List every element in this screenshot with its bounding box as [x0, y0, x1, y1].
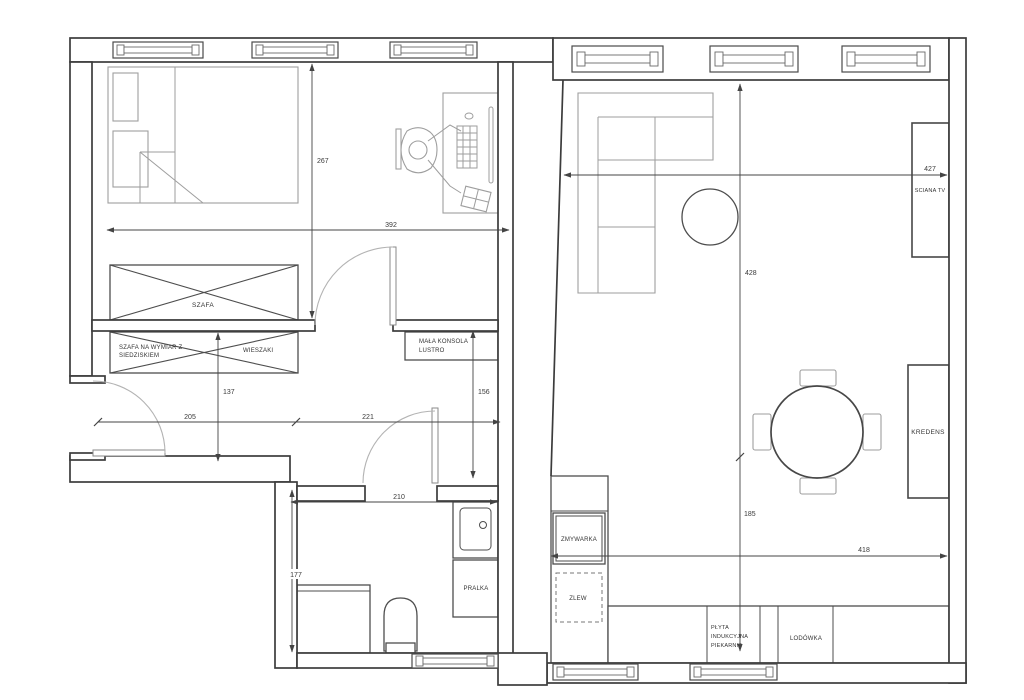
console-label-line1: MAŁA KONSOLA: [419, 339, 468, 345]
entrance-jamb-top: [70, 376, 105, 383]
window: [553, 664, 638, 680]
dim-kitchen-depth: 185: [744, 511, 756, 518]
coffee-table: [682, 189, 738, 245]
dining-set: [753, 370, 881, 494]
floor-plan-page: KREDENS SCIANA TV ZMYWARKA ZLEW PŁYTA IN…: [0, 0, 1024, 700]
washing-machine: PRALKA: [453, 560, 498, 617]
window: [710, 46, 798, 72]
head: [409, 141, 427, 159]
dim-hall-left: 205: [184, 414, 196, 421]
hob-label-line2: INDUKCYJNA: [711, 634, 748, 640]
wall-bathroom-north-left: [297, 486, 365, 501]
pillow: [113, 131, 148, 187]
window: [390, 42, 477, 58]
hob-label-line3: PIEKARNIK: [711, 643, 742, 649]
floor-plan-canvas: KREDENS SCIANA TV ZMYWARKA ZLEW PŁYTA IN…: [0, 0, 1024, 700]
szafa-label: SZAFA: [192, 302, 214, 309]
dishwasher-label: ZMYWARKA: [561, 537, 597, 543]
dim-living-width: 427: [924, 166, 936, 173]
entrance-door: [93, 381, 165, 456]
window: [412, 654, 498, 668]
console-mirror: MAŁA KONSOLA LUSTRO: [405, 332, 498, 360]
dim-console-run: 156: [478, 389, 490, 396]
bed: [108, 67, 298, 203]
window: [842, 46, 930, 72]
entrance-door-arc: [93, 381, 165, 453]
wall-right: [949, 38, 966, 683]
dining-chair: [753, 414, 771, 450]
kitchen-counter-bottom: PŁYTA INDUKCYJNA PIEKARNIK LODÓWKA: [608, 606, 949, 663]
custom-wardrobe-label-line2: SIEDZISKIEM: [119, 353, 159, 359]
window: [113, 42, 203, 58]
kitchen-sink-label: ZLEW: [569, 596, 587, 602]
wall-bedroom-south-right: [393, 320, 498, 331]
bedroom-door-leaf: [390, 247, 396, 325]
dining-chair: [863, 414, 881, 450]
dim-bathroom-width: 210: [393, 494, 405, 501]
entrance-door-leaf: [93, 450, 165, 456]
tv-wall-label: SCIANA TV: [915, 188, 946, 194]
shower: [297, 585, 370, 653]
dim-living-depth: 428: [745, 270, 757, 277]
dining-chair: [800, 478, 836, 494]
dim-wardrobe-run: 137: [223, 389, 235, 396]
washing-machine-label: PRALKA: [464, 586, 489, 592]
dining-chair: [800, 370, 836, 386]
bedroom-door: [315, 247, 396, 325]
kredens-label: KREDENS: [911, 429, 945, 436]
dim-bedroom-depth: 267: [317, 158, 329, 165]
tv-wall-panel: SCIANA TV: [912, 123, 949, 257]
bedroom-door-arc: [315, 247, 393, 325]
wall-left-upper: [70, 62, 92, 376]
custom-wardrobe-label-line1: SZAFA NA WYMIAR Z: [119, 345, 183, 351]
sofa: [578, 93, 713, 293]
hangers-label: WIESZAKI: [243, 348, 273, 354]
wardrobe-szafa: SZAFA: [110, 265, 298, 320]
fridge-label: LODÓWKA: [790, 635, 822, 642]
bathroom-door-leaf: [432, 408, 438, 483]
toilet: [384, 598, 417, 653]
pillow: [113, 73, 138, 121]
hob-label-line1: PŁYTA: [711, 625, 729, 631]
window: [690, 664, 777, 680]
wall-bathroom-north-right: [437, 486, 498, 501]
kitchen-counter-left: ZMYWARKA ZLEW: [551, 476, 608, 663]
wall-shaft-block: [498, 653, 547, 685]
dim-bathroom-depth: 177: [290, 572, 302, 579]
custom-wardrobe-with-seat: SZAFA NA WYMIAR Z SIEDZISKIEM WIESZAKI: [110, 332, 298, 373]
dim-kitchen-width: 418: [858, 547, 870, 554]
dining-table: [771, 386, 863, 478]
bathroom-sink: [453, 502, 498, 558]
wall-unit-divider: [498, 62, 513, 668]
console-label-line2: LUSTRO: [419, 348, 445, 354]
chair-back: [396, 129, 401, 169]
wall-bedroom-south-left: [92, 320, 315, 331]
wall-living-diagonal: [551, 80, 563, 476]
window: [572, 46, 663, 72]
dim-hall-right: 221: [362, 414, 374, 421]
bathroom-door: [363, 408, 438, 483]
window: [252, 42, 338, 58]
dim-bedroom-width: 392: [385, 222, 397, 229]
sideboard-kredens: KREDENS: [908, 365, 949, 498]
